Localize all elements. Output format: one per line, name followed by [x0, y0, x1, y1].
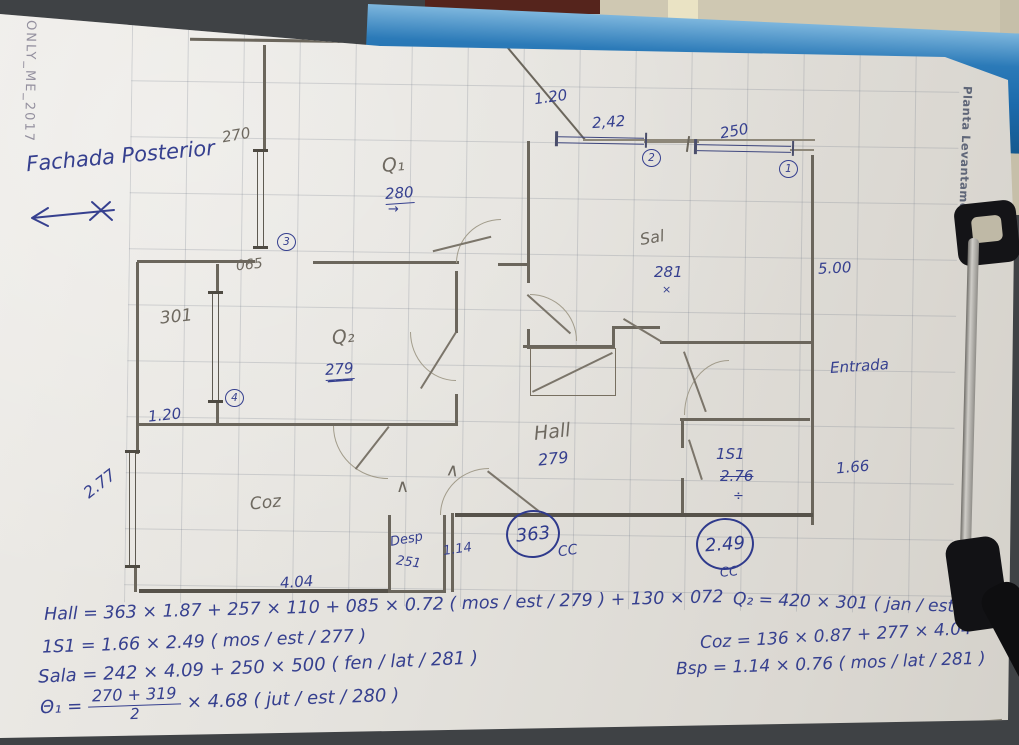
wall-is1-top [680, 418, 810, 421]
formula-q1-lhs: Θ₁ = [40, 697, 83, 716]
wall-center-vert-a [455, 271, 458, 333]
dim-opening-120-top: 1.20 [533, 88, 568, 108]
dim-window-277: 2.77 [81, 467, 119, 502]
formula-q1-denominator: 2 [130, 706, 140, 722]
height-is1-divide: ÷ [733, 490, 744, 503]
room-label-is1: 1S1 [716, 447, 745, 462]
room-label-hall: Hall [533, 421, 571, 444]
wall-hall-bottom [455, 513, 813, 517]
height-desp: 251 [395, 554, 421, 570]
window-270 [257, 151, 264, 247]
door-mark-desp-1: ∧ [396, 478, 409, 496]
wall-left-outer-lower [134, 566, 137, 592]
wall-desp-bottom [388, 590, 446, 593]
wall-is1-left-a [681, 420, 684, 448]
formula-is1: 1S1 = 1.66 × 2.49 ( mos / est / 277 ) [42, 628, 367, 657]
room-label-coz: Coz [249, 493, 282, 513]
formula-q1-rhs: × 4.68 ( jut / est / 280 ) [187, 686, 400, 711]
facade-arrow [22, 196, 122, 232]
wall-mid-horizontal-c [498, 263, 528, 266]
watermark-text: ONLY_ME_2017 [21, 20, 38, 150]
formula-coz: Coz = 136 × 0.87 + 277 × 4.04 [700, 621, 973, 652]
cc-label-is1: CC [719, 565, 738, 580]
wall-right-outer [811, 155, 814, 525]
dim-desp-width: 1.14 [442, 541, 472, 558]
paper-sheet: ONLY_ME_2017 Planta Levantamento [0, 0, 1019, 745]
door-mark-desp-2: ∧ [445, 461, 461, 481]
wall-center-vert-b [455, 394, 458, 426]
height-sala: 281 [654, 265, 683, 280]
wall-q1-left-upper [263, 45, 266, 152]
wall-right-mid [660, 341, 812, 344]
dim-window-242: 2,42 [592, 114, 626, 131]
wall-is1-left-b [681, 478, 684, 516]
label-entry: Entrada [830, 357, 890, 376]
formula-bsp: Bsp = 1.14 × 0.76 ( mos / lat / 281 ) [676, 651, 986, 679]
window-ref-4: 4 [225, 389, 244, 407]
window-ref-3: 3 [277, 233, 296, 251]
wall-q2-window-stub-top [216, 264, 219, 294]
dim-is1-width: 1.66 [835, 459, 870, 477]
photo-of-floorplan-on-clipboard: ONLY_ME_2017 Planta Levantamento [0, 0, 1019, 745]
dim-opening-120-left: 1.20 [147, 406, 182, 424]
wall-step-vert [612, 326, 615, 348]
dim-coz-width: 4.04 [280, 574, 314, 591]
window-242 [558, 136, 644, 144]
wall-coz-top [137, 423, 457, 426]
height-is1-old: 2.76 [720, 469, 753, 484]
dim-window-301: 301 [159, 307, 193, 327]
height-q1-arrow: → [388, 203, 399, 216]
wall-mid-horizontal-b [313, 261, 459, 264]
pencil-dash [976, 719, 1002, 723]
dim-opening-065: 065 [235, 257, 263, 274]
wall-desp-left [388, 515, 391, 593]
room-label-sala: Sal [639, 228, 666, 248]
window-301 [212, 293, 219, 401]
height-q2: 279 [325, 361, 355, 378]
room-label-q2: Q₂ [331, 327, 356, 349]
height-hall: 279 [537, 449, 569, 468]
wall-coz-bottom [139, 589, 391, 593]
wall-top-thin-a [644, 141, 699, 143]
window-ref-1: 1 [779, 160, 798, 178]
window-277 [129, 452, 136, 566]
formula-q1-fraction: 270 + 319 2 [88, 685, 182, 723]
height-sala-mark: × [662, 284, 671, 295]
height-q1: 280 [385, 185, 415, 202]
dim-length-500: 5.00 [818, 260, 852, 277]
window-ref-2: 2 [642, 149, 661, 167]
room-label-q1: Q₁ [381, 155, 405, 176]
wall-sala-left-a [527, 141, 530, 283]
cc-label-hall: CC [557, 543, 578, 560]
